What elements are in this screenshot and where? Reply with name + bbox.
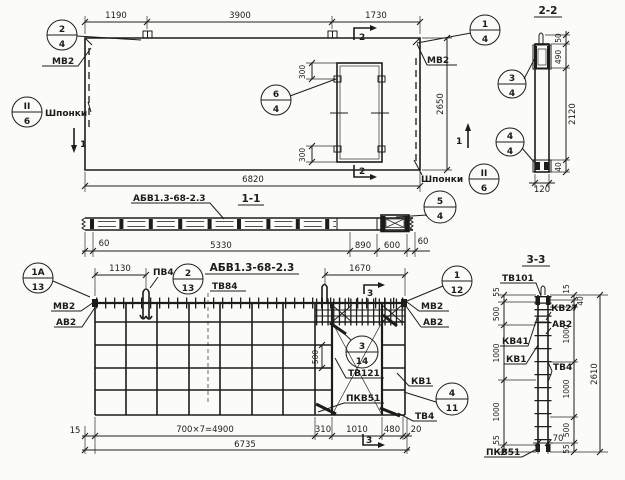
- callout-top: 4: [507, 132, 513, 142]
- panel-outline: [85, 38, 420, 170]
- callout-top: 3: [509, 74, 515, 84]
- lifting-loops: [143, 31, 337, 38]
- mark-1-label: 1: [80, 140, 86, 150]
- dim-480: 480: [384, 425, 400, 435]
- plan-top-dims: 1190 3900 1730: [82, 11, 423, 34]
- callout-bottom: 12: [451, 286, 464, 296]
- mark-2-label: 2: [359, 167, 365, 177]
- member-3-3: [536, 286, 551, 452]
- callout-top: 5: [437, 197, 443, 207]
- section-mark-2-top: 2: [354, 25, 377, 43]
- section-3-3-title: 3-3: [527, 254, 546, 266]
- callout-1A-13: 1А 13: [23, 263, 90, 297]
- dim-1130: 1130: [109, 264, 131, 274]
- callout-bottom: 4: [273, 105, 279, 115]
- mark-1-label: 1: [456, 137, 462, 147]
- dim-right-1000-b: 1000: [562, 379, 571, 398]
- corner-chamfers: [85, 38, 420, 45]
- dim-6735: 6735: [234, 440, 256, 450]
- dim-310: 310: [315, 425, 331, 435]
- section-3-3-left-dims: 55 500 1000 1000 55: [492, 287, 536, 455]
- callout-bottom: 11: [446, 404, 459, 414]
- dim-600: 600: [384, 241, 400, 251]
- dim-700x7: 700×7=4900: [176, 425, 234, 435]
- section-1-1-title: 1-1: [242, 193, 261, 205]
- dim-1730: 1730: [365, 11, 387, 21]
- section-mark-1-left: 1: [71, 128, 86, 153]
- dim-3900: 3900: [229, 11, 251, 21]
- dim-2610: 2610: [590, 363, 600, 385]
- callout-top: 2: [59, 25, 65, 35]
- dim-left-55-top: 55: [492, 287, 501, 297]
- slab-body: [82, 215, 413, 232]
- callout-top: 1: [482, 20, 488, 30]
- callout-bottom: 4: [59, 40, 65, 50]
- dim-1670: 1670: [349, 264, 371, 274]
- callout-II-6-right: II 6: [469, 164, 499, 194]
- dim-right-15: 15: [562, 284, 571, 294]
- callout-bottom: 4: [482, 35, 488, 45]
- label-shponki-left: Шпонки: [45, 109, 87, 119]
- section-3-3: 3-3 55 500 1000 1000 55: [484, 254, 608, 458]
- dim-left-500: 500: [492, 307, 501, 322]
- section-2-2-title: 2-2: [539, 5, 558, 17]
- rebar-plan: АБВ1.3-68-2.3 ТВ84: [51, 262, 449, 454]
- dim-300-top: 300: [298, 65, 307, 80]
- callout-top: 6: [273, 90, 279, 100]
- callout-bottom: 4: [437, 212, 443, 222]
- blueprint-page: 1190 3900 1730 300 300 2650 6820: [0, 0, 625, 480]
- label-pv4: ПВ4: [153, 268, 174, 278]
- section-mark-3-top: 3: [364, 282, 385, 299]
- callout-top: 4: [449, 389, 455, 399]
- dim-left-1000-b: 1000: [492, 402, 501, 421]
- callout-bottom: 6: [24, 117, 30, 127]
- callout-top: 1: [454, 271, 460, 281]
- member-2-2: [533, 33, 551, 172]
- callout-bottom: 4: [507, 147, 513, 157]
- label-av2: АВ2: [552, 320, 572, 330]
- dim-70: 70: [553, 434, 564, 444]
- section-1-1-dims: 60 5330 890 600 60: [82, 232, 430, 257]
- callout-bubbles: 2 4 1 4 6 4 II 6 II 6: [12, 15, 535, 415]
- callout-6-4: 6 4: [261, 79, 336, 115]
- rebar-title: АБВ1.3-68-2.3: [210, 262, 295, 274]
- dim-300-bottom: 300: [298, 148, 307, 163]
- mark-2-label: 2: [359, 33, 365, 43]
- mark-3-label: 3: [367, 289, 373, 299]
- panel-opening: [330, 63, 389, 162]
- dim-2120: 2120: [568, 103, 578, 125]
- section-mark-2-bottom: 2: [354, 165, 377, 180]
- dim-1190: 1190: [105, 11, 127, 21]
- callout-4-4: 4 4: [496, 128, 534, 162]
- dim-6820: 6820: [242, 175, 264, 185]
- dim-60-left: 60: [99, 239, 110, 249]
- section-2-2: 2-2 50 490 2120 40 120: [529, 5, 578, 195]
- callout-II-6-left: II 6: [12, 97, 42, 127]
- callout-1-12: 1 12: [407, 266, 472, 301]
- section-1-1: 1-1 АБВ1.3-68-2.3 60 5330 890 60: [82, 193, 430, 257]
- callout-top: 3: [359, 342, 365, 352]
- dim-2650: 2650: [436, 93, 446, 115]
- dim-5330: 5330: [210, 241, 232, 251]
- callout-top: 2: [185, 269, 191, 279]
- section-mark-1-right: 1: [456, 123, 471, 148]
- dim-890: 890: [355, 241, 371, 251]
- dim-500: 500: [311, 350, 320, 365]
- dim-40: 40: [554, 162, 563, 172]
- label-kv27: КВ27: [551, 304, 578, 314]
- dim-50: 50: [554, 33, 563, 43]
- callout-bottom: 4: [509, 89, 515, 99]
- callout-bottom: 6: [481, 184, 487, 194]
- dim-left-1000-a: 1000: [492, 343, 501, 362]
- callout-top: 1А: [31, 268, 44, 278]
- callout-2-13: 2 13: [173, 264, 203, 294]
- label-tv4: ТВ4: [553, 363, 572, 373]
- dim-60-right: 60: [418, 237, 429, 247]
- dim-1010: 1010: [346, 425, 368, 435]
- label-shponki-right: Шпонки: [421, 175, 463, 185]
- callout-3-4: 3 4: [498, 58, 535, 99]
- callout-bottom: 13: [32, 283, 45, 293]
- dim-120: 120: [534, 185, 550, 195]
- callout-bottom: 14: [356, 357, 369, 367]
- mark-3-label: 3: [366, 436, 372, 446]
- plan-labels: МВ2 Шпонки МВ2 Шпонки: [42, 44, 463, 185]
- dim-right-55: 55: [562, 444, 571, 454]
- callout-1-4: 1 4: [417, 15, 500, 45]
- dim-15: 15: [70, 426, 81, 436]
- rebar-bottom-dims: 15 700×7=4900 310 1010 480 20 6735: [70, 417, 422, 454]
- callout-3-14: 3 14: [337, 327, 378, 368]
- dim-left-55-bottom: 55: [492, 435, 501, 445]
- callout-2-4: 2 4: [47, 20, 141, 50]
- callout-top: II: [481, 169, 488, 179]
- key-dashed-edges: [89, 48, 416, 165]
- dim-490: 490: [554, 50, 563, 65]
- drawing-canvas: 1190 3900 1730 300 300 2650 6820: [0, 0, 625, 480]
- callout-4-11: 4 11: [404, 383, 468, 415]
- callout-bottom: 13: [182, 284, 195, 294]
- dim-20: 20: [411, 425, 422, 435]
- callout-top: II: [24, 102, 31, 112]
